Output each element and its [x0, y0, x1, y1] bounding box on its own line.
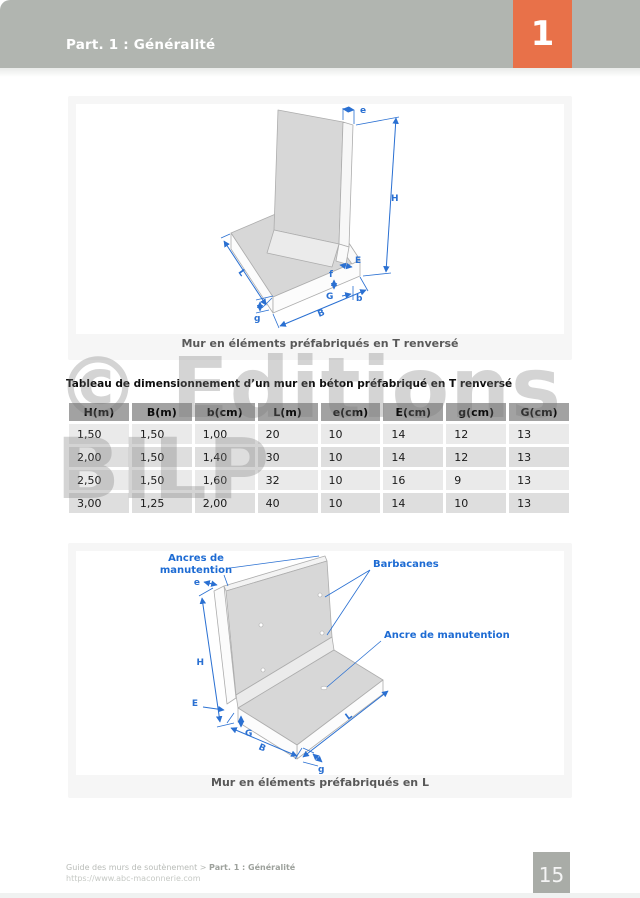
data-cell: 30 — [258, 447, 318, 467]
figure-t-wall-image: e H E f G b B — [76, 104, 564, 334]
dim-f: f — [329, 270, 333, 280]
l-wall-solid — [214, 556, 383, 759]
data-cell: 1,50 — [132, 424, 192, 444]
header-cell: b(cm) — [195, 403, 255, 421]
page-number: 15 — [539, 863, 564, 887]
header-cell: L(m) — [258, 403, 318, 421]
table-row: 2,00 1,50 1,40 30 10 14 12 13 — [69, 447, 569, 467]
dimension-table: H(m) B(m) b(cm) L(m) e(cm) E(cm) g(cm) G… — [66, 400, 572, 516]
data-cell: 1,40 — [195, 447, 255, 467]
dim-E: E — [355, 256, 361, 266]
data-cell: 1,60 — [195, 470, 255, 490]
data-cell: 13 — [509, 493, 569, 513]
t-wall-drawing: e H E f G b B — [76, 104, 564, 334]
breadcrumb-section: Part. 1 : Généralité — [209, 863, 295, 872]
label-ancres-line2: manutention — [160, 565, 232, 576]
breadcrumb-prefix: Guide des murs de soutènement > — [66, 863, 209, 872]
header-cell: E(cm) — [383, 403, 443, 421]
data-cell: 10 — [321, 424, 381, 444]
label-ancres-line1: Ancres de — [168, 553, 224, 564]
anchor-point — [321, 686, 327, 690]
data-cell: 3,00 — [69, 493, 129, 513]
t-wall-solid — [231, 110, 360, 313]
table-title: Tableau de dimensionnement d’un mur en b… — [66, 378, 512, 390]
figure-l-wall-image: Ancres de manutention Barbacanes Ancre d… — [76, 551, 564, 775]
dim-g: g — [254, 314, 260, 324]
page-number-box: 15 — [533, 852, 570, 898]
data-cell: 14 — [383, 493, 443, 513]
figure-l-wall: Ancres de manutention Barbacanes Ancre d… — [68, 543, 572, 798]
page-bottom-edge — [0, 893, 640, 898]
header-cell: G(cm) — [509, 403, 569, 421]
figure-t-wall-caption: Mur en éléments préfabriqués en T renver… — [68, 337, 572, 350]
dim-E: E — [192, 699, 198, 709]
chapter-number: 1 — [531, 17, 555, 51]
data-cell: 9 — [446, 470, 506, 490]
data-cell: 13 — [509, 447, 569, 467]
data-cell: 2,00 — [195, 493, 255, 513]
dim-H: H — [196, 658, 204, 668]
table-row: 2,50 1,50 1,60 32 10 16 9 13 — [69, 470, 569, 490]
header-cell: B(m) — [132, 403, 192, 421]
table-header-row: H(m) B(m) b(cm) L(m) e(cm) E(cm) g(cm) G… — [69, 403, 569, 421]
dim-e: e — [360, 106, 366, 116]
data-cell: 2,00 — [69, 447, 129, 467]
data-cell: 2,50 — [69, 470, 129, 490]
data-cell: 14 — [383, 424, 443, 444]
barbacane-hole — [261, 668, 265, 672]
data-cell: 12 — [446, 424, 506, 444]
section-title: Part. 1 : Généralité — [66, 37, 215, 53]
dim-B: B — [316, 308, 326, 320]
dim-g: g — [318, 765, 324, 775]
data-cell: 10 — [321, 470, 381, 490]
table-row: 1,50 1,50 1,00 20 10 14 12 13 — [69, 424, 569, 444]
barbacane-hole — [320, 631, 324, 635]
header-cell: e(cm) — [321, 403, 381, 421]
data-cell: 32 — [258, 470, 318, 490]
data-cell: 16 — [383, 470, 443, 490]
label-barbacanes: Barbacanes — [373, 559, 439, 570]
data-cell: 12 — [446, 447, 506, 467]
data-cell: 1,00 — [195, 424, 255, 444]
document-page: Part. 1 : Généralité 1 — [0, 0, 640, 898]
chapter-number-box: 1 — [513, 0, 572, 68]
data-cell: 13 — [509, 424, 569, 444]
header-cell: H(m) — [69, 403, 129, 421]
dim-B: B — [257, 743, 267, 755]
header-cell: g(cm) — [446, 403, 506, 421]
footer-breadcrumb: Guide des murs de soutènement > Part. 1 … — [66, 863, 295, 872]
barbacane-hole — [318, 593, 322, 597]
data-cell: 40 — [258, 493, 318, 513]
data-cell: 1,50 — [132, 470, 192, 490]
dim-b: b — [356, 294, 363, 304]
data-cell: 10 — [321, 447, 381, 467]
l-wall-drawing: Ancres de manutention Barbacanes Ancre d… — [76, 551, 564, 775]
label-ancre: Ancre de manutention — [384, 630, 510, 641]
data-cell: 14 — [383, 447, 443, 467]
header-shadow — [0, 68, 640, 77]
footer-url: https://www.abc-maconnerie.com — [66, 874, 201, 883]
data-cell: 20 — [258, 424, 318, 444]
figure-l-wall-caption: Mur en éléments préfabriqués en L — [68, 776, 572, 789]
barbacane-hole — [259, 623, 263, 627]
dim-G: G — [326, 292, 333, 302]
dim-e: e — [194, 578, 200, 588]
figure-t-wall: e H E f G b B — [68, 96, 572, 360]
dim-H: H — [391, 194, 399, 204]
data-cell: 10 — [446, 493, 506, 513]
data-cell: 10 — [321, 493, 381, 513]
data-cell: 13 — [509, 470, 569, 490]
data-cell: 1,50 — [132, 447, 192, 467]
data-cell: 1,50 — [69, 424, 129, 444]
table-row: 3,00 1,25 2,00 40 10 14 10 13 — [69, 493, 569, 513]
dim-L: L — [236, 268, 248, 279]
data-cell: 1,25 — [132, 493, 192, 513]
